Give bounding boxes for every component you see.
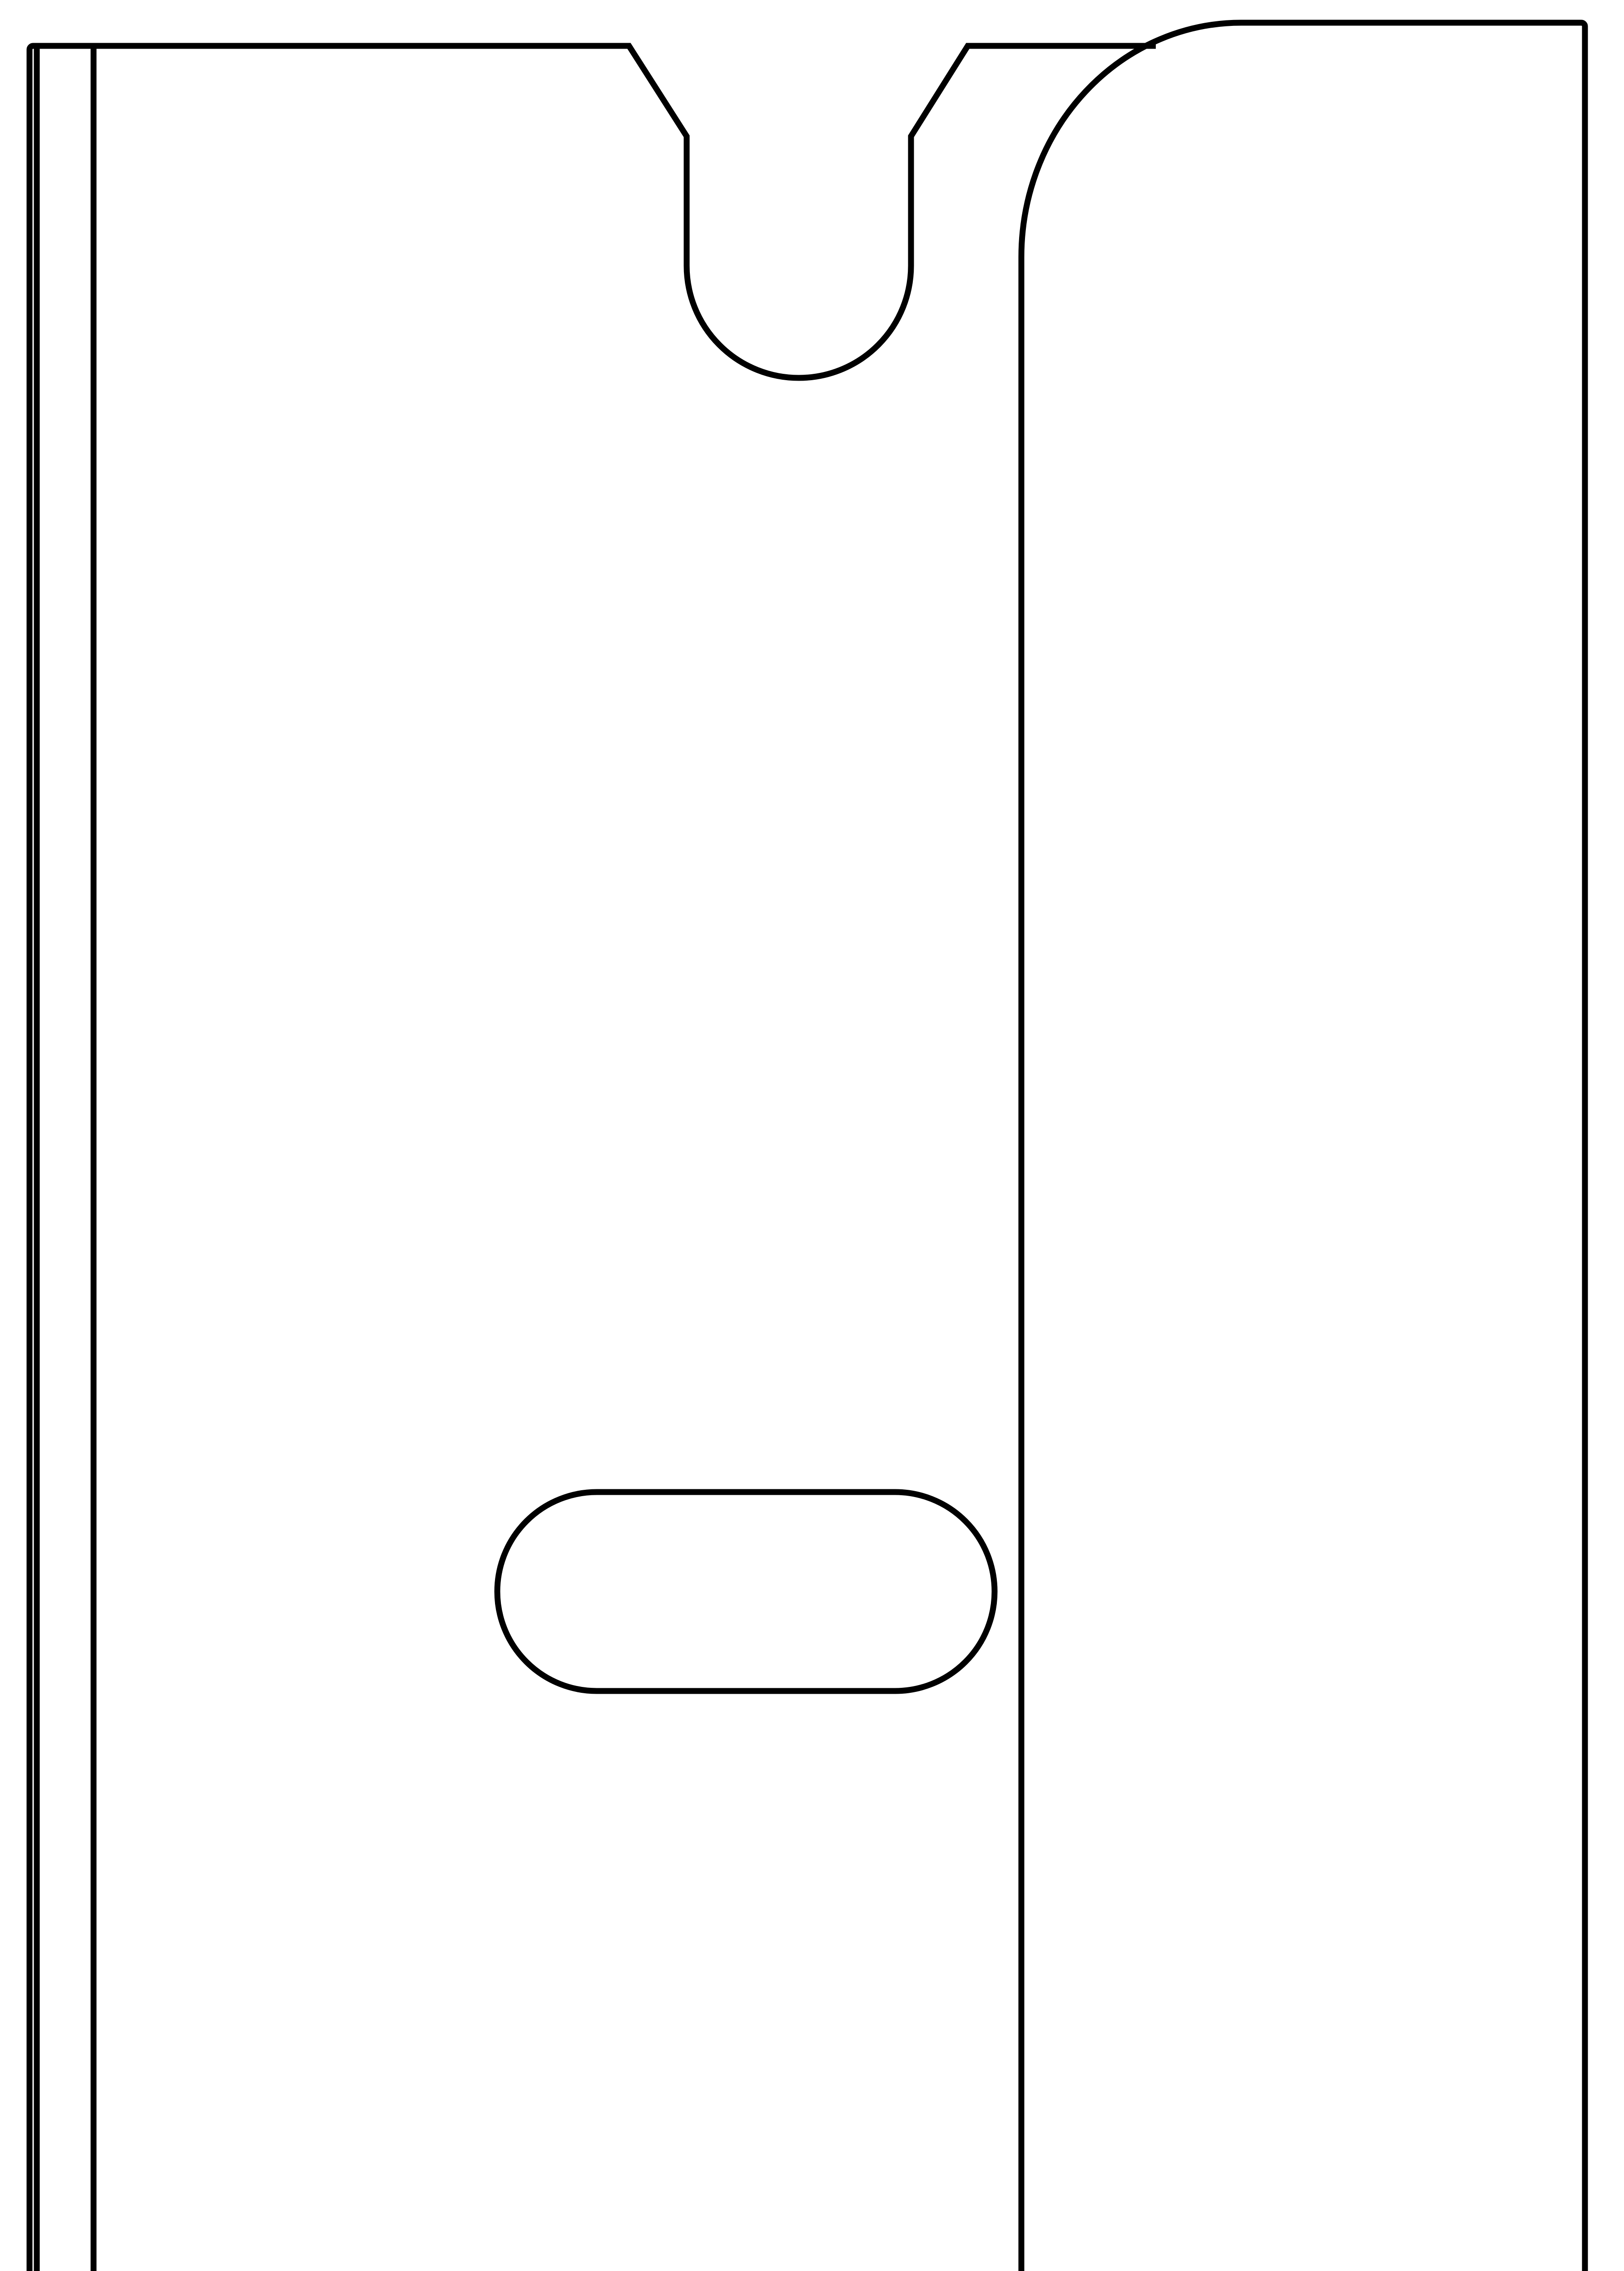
blade-body-outline (30, 46, 1156, 2271)
razor-blade-technical-drawing (0, 0, 1624, 2271)
spine-outline (1021, 23, 1585, 2271)
drawing-canvas (0, 0, 1624, 2271)
center-slot (497, 1492, 995, 1691)
